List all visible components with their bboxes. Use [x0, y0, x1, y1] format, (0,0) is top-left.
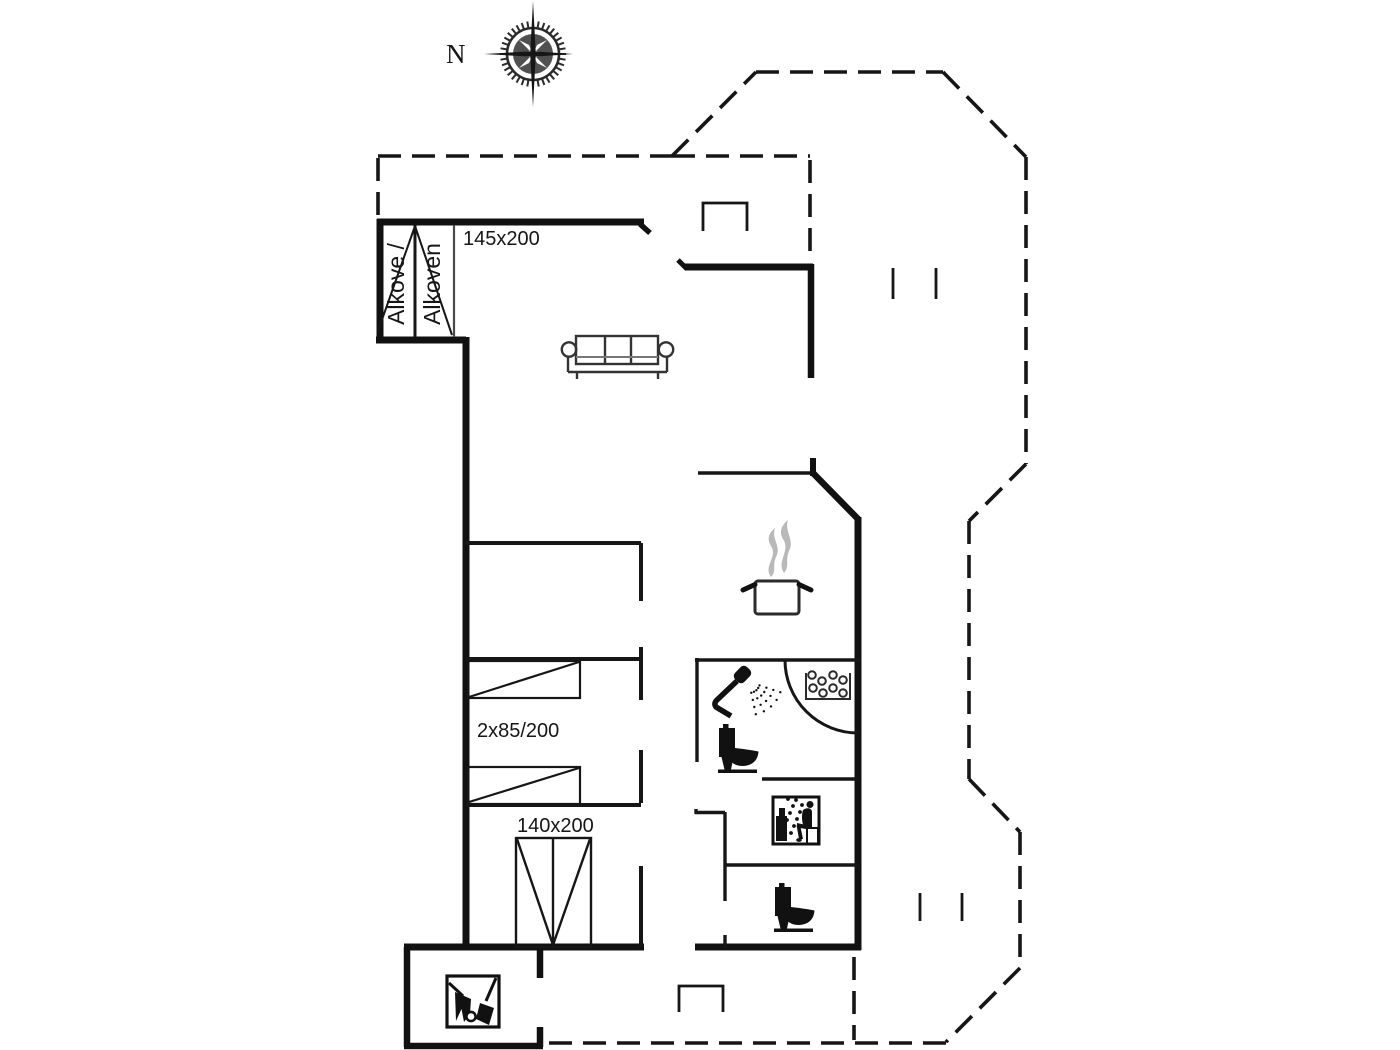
svg-text:140x200: 140x200 [517, 815, 594, 837]
svg-text:2x85/200: 2x85/200 [477, 720, 559, 742]
svg-text:145x200: 145x200 [463, 228, 540, 250]
svg-text:Alkoven: Alkoven [419, 243, 445, 325]
svg-text:N: N [446, 39, 466, 69]
svg-text:Alkove /: Alkove / [383, 242, 409, 324]
